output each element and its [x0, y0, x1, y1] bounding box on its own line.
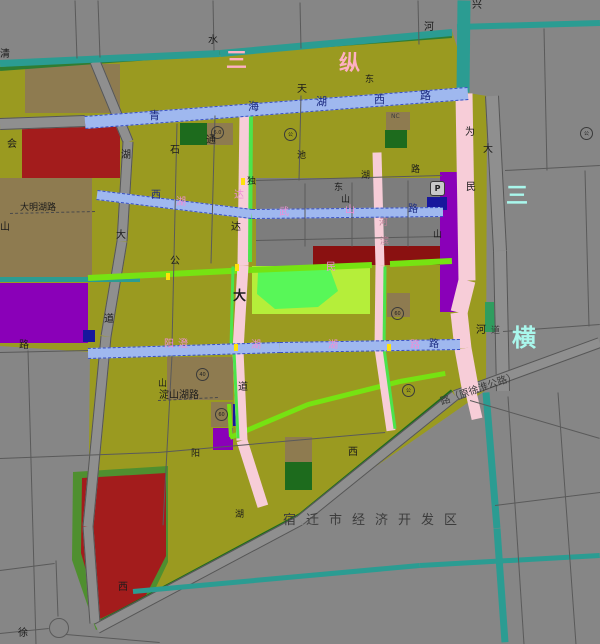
- zone-purple-west: [0, 283, 88, 343]
- map-label: 山: [341, 196, 350, 205]
- map-label: 道: [491, 327, 500, 336]
- map-label: 公: [170, 257, 180, 267]
- map-label: 池: [297, 152, 306, 161]
- zone-red-nw: [22, 123, 120, 178]
- thin-road: [56, 560, 59, 616]
- map-label: 西: [348, 448, 358, 458]
- map-label: 大: [483, 145, 493, 155]
- zone-brown-west: [0, 178, 92, 278]
- map-label: 独: [247, 178, 256, 187]
- river-southeast: [494, 528, 509, 642]
- yellow-crossing-mark: [234, 344, 238, 351]
- map-label: 山: [0, 223, 10, 233]
- map-label: 民: [326, 263, 336, 273]
- thin-road: [305, 183, 306, 246]
- thin-road: [508, 396, 525, 644]
- map-label: NC: [391, 114, 400, 120]
- map-label: 山: [345, 206, 355, 216]
- map-label: 大: [116, 231, 126, 241]
- thin-road: [544, 28, 548, 170]
- map-label: 清: [0, 50, 10, 60]
- road-east-avenue: [485, 96, 507, 252]
- map-label: 阳: [191, 450, 200, 459]
- map-label: 达: [234, 191, 244, 201]
- roundabout-icon: [49, 618, 69, 638]
- map-label: 三: [226, 50, 247, 71]
- map-label: 澄: [178, 340, 188, 350]
- map-label: 河: [379, 219, 388, 228]
- map-label: 达: [231, 223, 241, 233]
- river-southeast: [483, 392, 501, 529]
- map-label: 为: [465, 128, 475, 138]
- yellow-crossing-mark: [166, 273, 170, 280]
- circle-marker-icon: 60: [215, 408, 228, 421]
- map-label: 路: [410, 341, 420, 351]
- circle-marker-icon: 公: [284, 128, 297, 141]
- thin-road: [300, 2, 302, 48]
- map-label: 河: [476, 326, 486, 336]
- block-darkgreen-1: [180, 123, 207, 145]
- block-navy-west: [83, 330, 95, 342]
- map-label: 横: [512, 326, 536, 350]
- map-label: 东: [365, 76, 374, 85]
- map-label: 淀山湖路: [159, 391, 199, 401]
- circle-marker-icon: 公: [580, 127, 593, 140]
- map-label: 纵: [339, 53, 360, 74]
- map-label: 河: [424, 23, 434, 33]
- thin-road: [66, 634, 160, 643]
- map-label: 海: [248, 101, 259, 112]
- map-label: 宿迁市经济开发区: [283, 514, 467, 527]
- circle-marker-icon: 60: [391, 307, 404, 320]
- map-label: 东: [334, 184, 343, 193]
- map-label: 大: [233, 290, 246, 303]
- map-label: 大明湖路: [20, 204, 56, 213]
- map-label: 湖: [361, 172, 370, 181]
- map-label: 湖: [316, 96, 327, 107]
- thin-road: [495, 492, 600, 506]
- map-label: 阳: [164, 340, 174, 350]
- map-label: 兴: [472, 1, 482, 11]
- map-label: 湖: [251, 341, 261, 351]
- map-canvas: 6.0公公406060公P清会山路水河兴三纵三横青海天湖西路东通石湖大道独池东山…: [0, 0, 600, 644]
- parking-icon: P: [430, 181, 445, 196]
- map-label: 青: [149, 110, 160, 121]
- map-label: 湖: [328, 341, 338, 351]
- circle-marker-icon: 公: [402, 384, 415, 397]
- river-vertical-north: [457, 0, 471, 92]
- map-label: 武: [279, 208, 289, 218]
- map-label: 路: [411, 166, 420, 175]
- map-label: 西: [374, 94, 385, 105]
- map-label: 徐: [18, 629, 28, 639]
- yellow-crossing-mark: [387, 344, 391, 351]
- map-label: 山: [158, 380, 167, 389]
- thin-road: [418, 0, 420, 44]
- map-label: 湖: [176, 198, 186, 208]
- block-darkgreen-2: [385, 130, 407, 148]
- map-label: 滨: [380, 238, 389, 247]
- map-label: 山: [433, 231, 442, 240]
- thin-road: [0, 350, 88, 353]
- map-label: 湖: [121, 151, 131, 161]
- thin-road: [98, 0, 101, 57]
- map-label: 天: [297, 85, 307, 95]
- map-label: 路: [420, 90, 431, 101]
- map-label: 民: [466, 183, 476, 193]
- map-label: 三: [506, 186, 528, 208]
- map-label: 路: [429, 340, 439, 350]
- map-label: 道: [238, 383, 248, 393]
- map-label: 西: [151, 191, 161, 201]
- map-label: 西: [118, 583, 128, 593]
- city-blocks-sw: [256, 248, 316, 266]
- map-label: 水: [208, 36, 218, 46]
- map-label: 石: [170, 146, 180, 156]
- thin-road: [28, 350, 37, 644]
- yellow-crossing-mark: [241, 178, 245, 185]
- map-label: 路: [408, 205, 418, 215]
- map-label: 会: [7, 140, 17, 150]
- yellow-crossing-mark: [235, 264, 239, 271]
- map-label: 道: [104, 315, 114, 325]
- thin-road: [505, 165, 600, 171]
- thin-road: [75, 0, 78, 58]
- map-label: 通: [206, 136, 216, 146]
- map-label: 湖: [235, 511, 244, 520]
- map-label: 路: [19, 341, 29, 351]
- river-north-east: [457, 20, 600, 30]
- thin-road: [585, 170, 590, 326]
- block-darkgreen-3: [285, 462, 312, 490]
- river-bottom: [420, 553, 600, 568]
- circle-marker-icon: 40: [196, 368, 209, 381]
- thin-road: [0, 563, 55, 571]
